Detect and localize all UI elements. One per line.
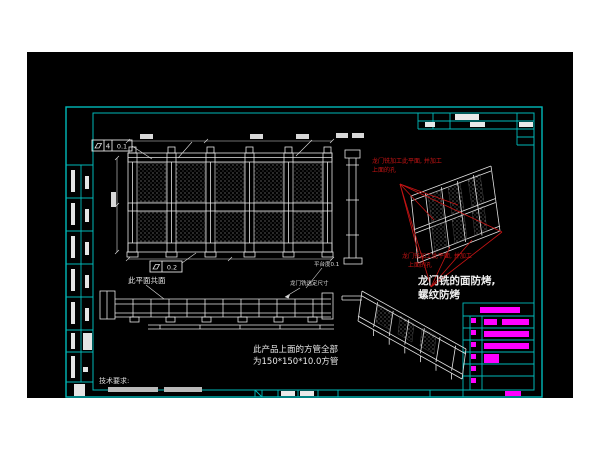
illegible-text-block	[71, 170, 75, 192]
illegible-text-block	[250, 134, 263, 139]
coplanar-note: 此平面共面	[128, 275, 166, 285]
illegible-text-block	[164, 387, 202, 392]
red-note-top-line1: 龙门铣加工此平面, 并加工	[372, 157, 442, 165]
tube-note-line1: 此产品上面的方管全部	[253, 344, 339, 355]
row-marker	[471, 354, 476, 359]
illegible-text-block	[300, 391, 314, 396]
illegible-text-block	[484, 319, 497, 325]
illegible-text-block	[85, 242, 89, 255]
cad-screenshot-page: 4 0.1 0.2	[0, 0, 600, 450]
illegible-text-block	[71, 333, 75, 349]
row-marker	[471, 330, 476, 335]
illegible-text-block	[425, 122, 435, 127]
illegible-text-block	[85, 275, 89, 288]
illegible-text-block	[484, 354, 499, 363]
illegible-text-block	[140, 134, 153, 139]
illegible-text-block	[83, 367, 88, 372]
cad-drawing-canvas: 4 0.1 0.2	[0, 0, 600, 450]
illegible-text-block	[502, 319, 529, 325]
illegible-text-block	[71, 269, 75, 291]
illegible-text-block	[111, 192, 116, 207]
red-note-bottom-line2: 上面的孔	[408, 261, 432, 269]
tech-req-title: 技术要求:	[99, 376, 129, 385]
red-note-top-line2: 上面的孔	[372, 166, 396, 174]
illegible-text-block	[71, 203, 75, 225]
illegible-text-block	[85, 176, 89, 189]
illegible-text-block	[505, 391, 521, 396]
fcf1-tolerance: 0.1	[117, 143, 127, 151]
illegible-text-block	[519, 122, 533, 127]
fcf2-tolerance: 0.2	[167, 264, 177, 272]
solid-cell-block	[74, 384, 85, 396]
main-note-line1: 龙门铣的面防烤,	[417, 274, 496, 287]
illegible-text-block	[71, 302, 75, 324]
row-marker	[471, 378, 476, 383]
red-note-bottom-line1: 龙门铣加工此平面, 并加工	[402, 252, 472, 260]
illegible-text-block	[470, 122, 485, 127]
illegible-text-block	[455, 114, 479, 120]
illegible-text-block	[296, 134, 309, 139]
fcf1-datum: 4	[106, 143, 111, 151]
gantry-dim-note: 龙门铣选定尺寸	[290, 279, 329, 287]
illegible-text-block	[85, 308, 89, 321]
row-marker	[471, 318, 476, 323]
platform-flatness-note: 平台度0.1	[314, 260, 339, 268]
main-note-line2: 螺纹防烤	[418, 288, 460, 301]
illegible-text-block	[108, 387, 158, 392]
illegible-text-block	[71, 236, 75, 258]
illegible-text-block	[85, 209, 89, 222]
illegible-text-block	[281, 391, 295, 396]
illegible-text-block	[484, 331, 529, 337]
row-marker	[471, 366, 476, 371]
illegible-text-block	[352, 133, 364, 138]
illegible-text-block	[484, 343, 529, 349]
illegible-text-block	[336, 133, 348, 138]
solid-cell-block	[83, 333, 92, 350]
illegible-text-block	[71, 356, 75, 378]
tube-note-line2: 为150*150*10.0方管	[253, 356, 338, 367]
row-marker	[471, 342, 476, 347]
title-block-header-text	[480, 307, 520, 313]
